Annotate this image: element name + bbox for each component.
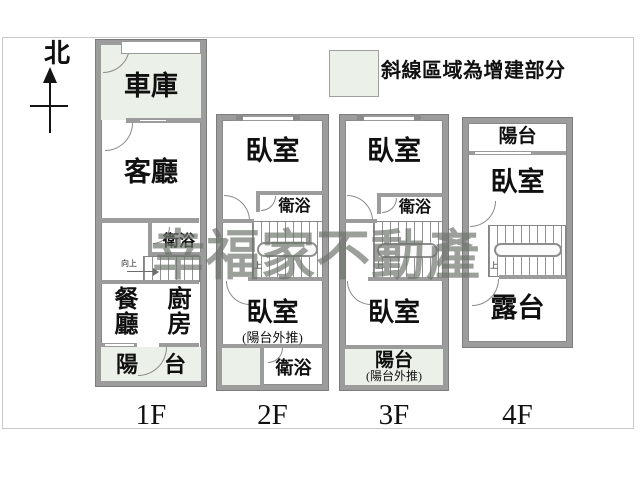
stairs-direction-note-3f: 上 xyxy=(375,260,383,271)
room-label-bath-upper-2f: 衛浴 xyxy=(266,199,323,216)
floor-label-3f: 3F xyxy=(340,399,448,432)
window-cap xyxy=(236,114,243,121)
addition-area-2f xyxy=(222,348,262,385)
wall xyxy=(222,219,254,223)
room-label-garage-1f: 車庫 xyxy=(101,72,201,101)
window-cap xyxy=(414,114,421,121)
room-label-bedroom-4f: 臥室 xyxy=(469,168,566,197)
room-label-bath-lower-2f: 衛浴 xyxy=(264,359,323,378)
window xyxy=(104,343,135,347)
legend-text: 斜線區域為增建部分 xyxy=(381,61,566,82)
stairs-handrail xyxy=(494,243,562,257)
wall xyxy=(345,345,443,349)
wall xyxy=(256,191,323,195)
stairs-handrail xyxy=(257,242,318,257)
compass-horizontal-line xyxy=(30,105,68,107)
compass-vertical-line xyxy=(49,81,51,133)
room-label-balcony-4f: 陽台 xyxy=(469,127,566,147)
wall xyxy=(148,252,201,256)
stairs-direction-note-4f: 上 xyxy=(490,260,498,271)
room-label-balcony-1f: 陽台 xyxy=(114,353,214,376)
room-label-bedroom-upper-3f: 臥室 xyxy=(345,137,443,166)
stairs-direction-note-2f: 上 xyxy=(254,260,262,271)
window-cap xyxy=(357,114,364,121)
room-label-bedroom-upper-2f: 臥室 xyxy=(222,137,323,166)
room-label-bath-upper-3f: 衛浴 xyxy=(387,200,443,217)
floor-label-2f: 2F xyxy=(217,399,328,432)
wall xyxy=(248,277,323,281)
room-label-living-1f: 客廳 xyxy=(101,158,201,187)
north-label: 北 xyxy=(42,40,72,68)
stairs-direction-arrow-icon xyxy=(153,268,159,276)
wall xyxy=(368,277,443,281)
wall xyxy=(377,193,443,197)
floor-plan-image: 北 斜線區域為增建部分 幸福家不動產 車庫 客廳 衛浴 向上 餐廳 廚房 陽台 … xyxy=(0,0,640,480)
stairs-handrail xyxy=(377,243,438,258)
room-note-balcony-3f: (陽台外推) xyxy=(345,370,443,383)
room-label-kitchen-1f: 廚房 xyxy=(166,288,193,338)
door-opening xyxy=(137,343,159,347)
wall xyxy=(256,191,260,212)
room-label-terrace-4f: 露台 xyxy=(469,294,566,323)
window xyxy=(242,116,294,121)
legend-addition-swatch xyxy=(329,50,379,97)
garage-door-opening-1f xyxy=(121,41,201,54)
wall xyxy=(148,223,152,254)
wall xyxy=(499,275,566,279)
wall xyxy=(377,193,381,214)
room-label-bath-1f: 衛浴 xyxy=(156,234,202,251)
wall xyxy=(345,219,377,223)
stairs-direction-note-1f: 向上 xyxy=(121,258,137,269)
window xyxy=(139,119,167,122)
room-label-bedroom-lower-3f: 臥室 xyxy=(345,299,443,327)
floor-label-4f: 4F xyxy=(463,399,572,432)
stairs-direction-line xyxy=(127,271,153,272)
window-cap xyxy=(293,114,300,121)
stairs-1f xyxy=(143,256,200,282)
room-label-dining-1f: 餐廳 xyxy=(113,288,140,338)
window xyxy=(474,151,532,155)
room-note-bedroom-2f: (陽台外推) xyxy=(222,331,323,345)
window xyxy=(363,116,415,121)
room-label-bedroom-lower-2f: 臥室 xyxy=(222,299,323,327)
floor-label-1f: 1F xyxy=(96,399,206,432)
wall xyxy=(101,280,199,284)
